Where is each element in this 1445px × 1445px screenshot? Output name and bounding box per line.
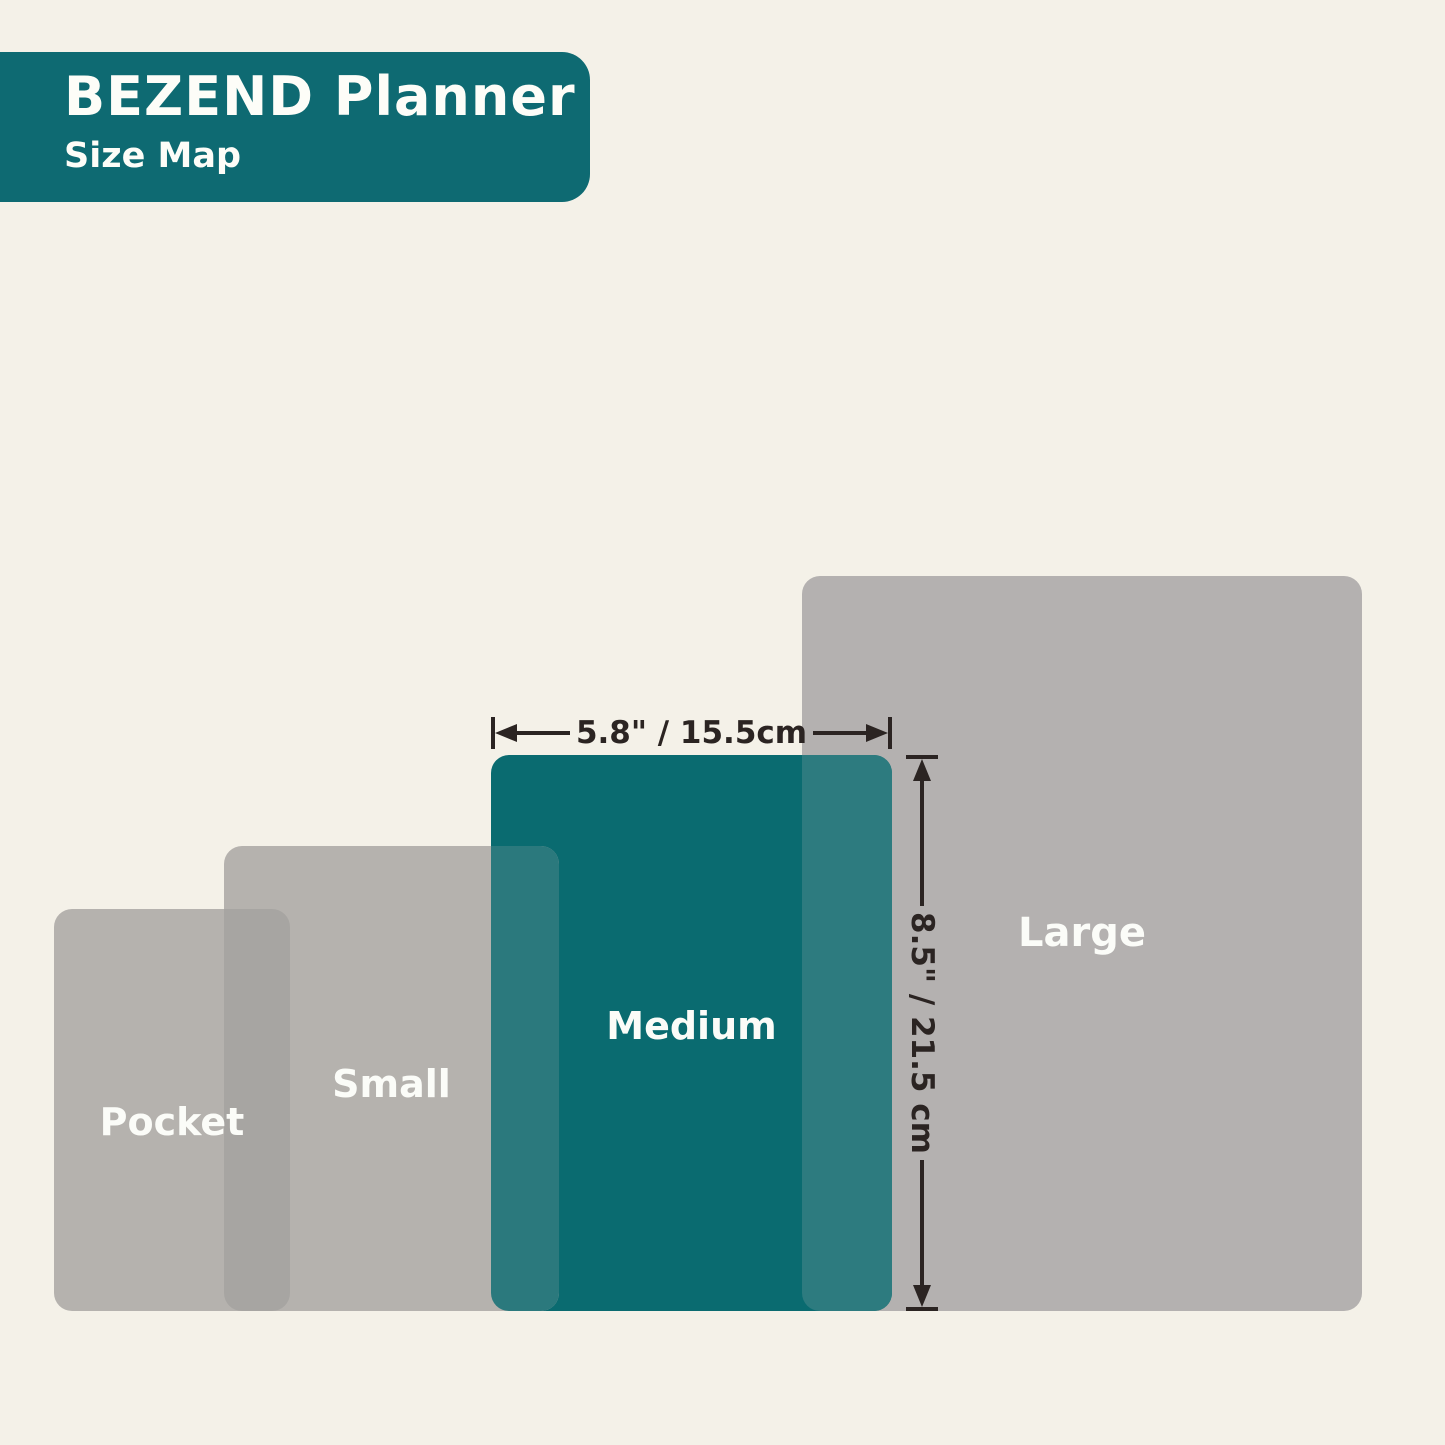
arrowhead-left-icon	[495, 724, 517, 742]
dimension-line-segment	[517, 731, 570, 735]
overlap-pocket-small	[224, 909, 290, 1311]
dimension-tick-right	[888, 717, 892, 749]
width-dimension-label: 5.8" / 15.5cm	[570, 715, 813, 751]
width-dimension-annotation: 5.8" / 15.5cm	[491, 711, 892, 755]
overlap-medium-large	[802, 755, 892, 1311]
arrowhead-down-icon	[913, 1285, 931, 1307]
arrowhead-right-icon	[866, 724, 888, 742]
size-map-canvas: BEZEND Planner Size Map Large Medium Sma…	[0, 0, 1445, 1445]
height-dimension-annotation: 8.5" / 21.5 cm	[900, 755, 944, 1311]
arrowhead-up-icon	[913, 759, 931, 781]
header-badge: BEZEND Planner Size Map	[0, 52, 590, 202]
page-title: BEZEND Planner	[64, 66, 590, 128]
dimension-line-segment	[920, 781, 924, 906]
overlap-small-medium	[491, 846, 559, 1311]
height-dimension-label: 8.5" / 21.5 cm	[904, 906, 940, 1160]
page-subtitle: Size Map	[64, 136, 590, 176]
dimension-line-segment	[813, 731, 866, 735]
dimension-line-segment	[920, 1160, 924, 1285]
dimension-tick-bottom	[906, 1307, 938, 1311]
